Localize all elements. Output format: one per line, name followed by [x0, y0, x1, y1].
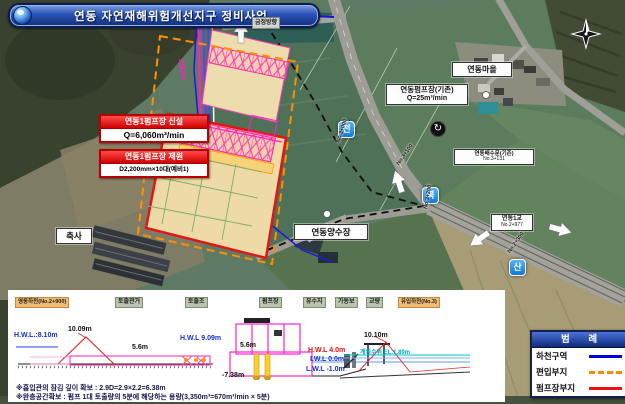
marker-dot: [483, 92, 490, 99]
measure-levee-left: 10.09m: [68, 326, 92, 333]
legend-row-incorporated: 편입부지: [532, 364, 625, 380]
measure-len-a: 5.6m: [132, 344, 148, 351]
section-tag-bridge: 교량: [366, 297, 383, 308]
bridge-label: 연동1교 No.2+977: [491, 214, 533, 231]
existing-pump-capacity: Q=25m³/min: [387, 95, 467, 103]
existing-pump-name: 연동펌프장(기존): [387, 86, 467, 95]
legend-line-dashed-orange: [589, 371, 622, 374]
new-pump-callout: 연동1펌프장 신설 Q=6,060m³/min: [99, 114, 209, 143]
legend-line-solid-red: [589, 387, 622, 390]
measure-len-b: 5.6m: [240, 342, 256, 349]
new-pump-title: 연동1펌프장 신설: [101, 116, 207, 129]
measure-depth: -7.38m: [222, 372, 244, 379]
measure-hwl-mid: H.W.L 9.09m: [180, 335, 221, 342]
bridge-station: No.2+977: [492, 223, 532, 229]
measure-plan-wl: 계획수위 EL.1.89m: [360, 350, 410, 356]
legend: 범 례 하천구역 편입부지 펌프장부지: [530, 330, 625, 398]
sluice-station: No.3+131: [455, 157, 533, 163]
section-tag-retention: 유수지: [303, 297, 326, 308]
section-tag-weir: 가동보: [335, 297, 358, 308]
legend-line-solid-blue: [589, 355, 622, 358]
globe-icon: [13, 6, 32, 25]
legend-row-pumpsite: 펌프장부지: [532, 380, 625, 396]
sluice-label: 연동배수문(기존) No.3+131: [454, 149, 534, 165]
measure-lwl-right: L.W.L -1.0m: [306, 366, 345, 373]
pump-spec-title: 연동1펌프장 제원: [101, 151, 207, 164]
measure-hwl-left: H.W.L.:8.10m: [14, 332, 58, 339]
cross-section-panel: 영동하천(No.2+900) 토출관거 토출조 펌프장 유수지 가동보 교량 유…: [8, 290, 505, 402]
rotate-icon: ↻: [430, 121, 446, 137]
project-map-screen: 연동 자연재해위험개선지구 정비사업 금정방향 연동마을 연동펌프장(기존) Q…: [0, 0, 625, 404]
section-tag-pump: 펌프장: [259, 297, 282, 308]
legend-label: 하천구역: [536, 350, 567, 362]
pump-spec-callout: 연동1펌프장 제원 D2,200mm×10대(예비1): [99, 149, 209, 178]
section-tag-river-left: 영동하천(No.2+900): [15, 297, 69, 308]
landtype-badge-san: 산: [509, 259, 526, 276]
pump-spec-value: D2,200mm×10대(예비1): [101, 164, 207, 176]
section-tag-conduit: 토출관거: [115, 297, 143, 308]
direction-label-geumjeong: 금정방향: [252, 17, 280, 29]
chuksa-label: 축사: [56, 228, 92, 244]
legend-label: 편입부지: [536, 366, 567, 378]
legend-row-river: 하천구역: [532, 348, 625, 364]
marker-dot: [324, 211, 331, 218]
yangsu-label: 연동양수장: [294, 224, 368, 240]
legend-label: 펌프장부지: [536, 382, 575, 394]
section-tag-river-right: 유입하천(No.3): [398, 297, 440, 308]
section-tag-tank: 토출조: [185, 297, 208, 308]
measure-levee-right: 10.10m: [364, 332, 388, 339]
new-pump-capacity: Q=6,060m³/min: [101, 129, 207, 141]
page-title: 연동 자연재해위험개선지구 정비사업: [60, 8, 268, 24]
legend-title: 범 례: [532, 332, 625, 348]
existing-pump-label: 연동펌프장(기존) Q=25m³/min: [386, 84, 468, 105]
village-label: 연동마을: [452, 62, 512, 77]
measure-iwl-right: I.W.L 0.0m: [310, 356, 344, 363]
section-note-2: ※완충공간확보 : 펌프 1대 토출량의 5분에 해당하는 용량(3,350m³…: [16, 392, 270, 402]
measure-hwl-right: H.W.L 4.0m: [308, 347, 345, 354]
